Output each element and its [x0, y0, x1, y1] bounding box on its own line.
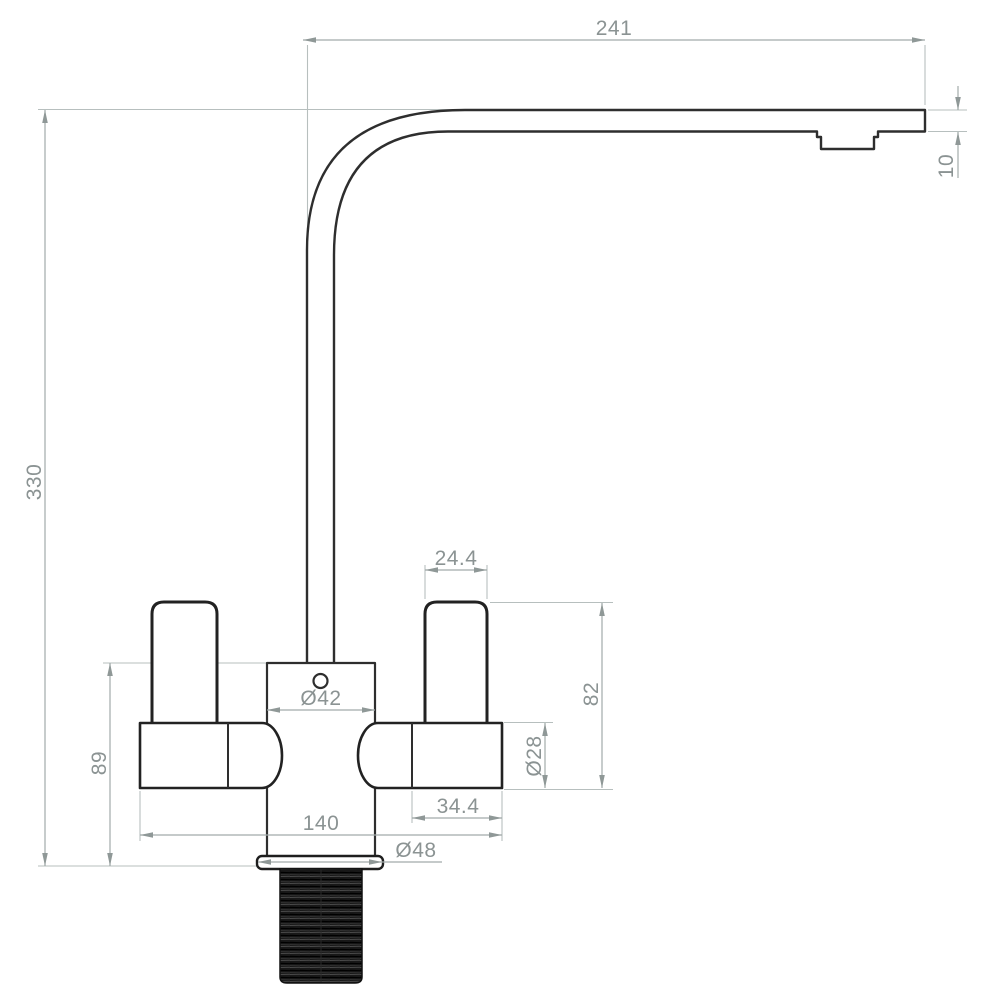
arrowhead-140-right	[489, 832, 502, 838]
dim-text-handle-base-length: 34.4	[437, 795, 480, 818]
dim-handle-height: 82	[580, 603, 605, 788]
spout-and-riser-outline	[307, 110, 925, 663]
dim-spout-tip-height: 10	[935, 86, 961, 178]
right-handle-base	[358, 723, 502, 788]
dim-handle-base-diameter: Ø28	[523, 723, 548, 788]
technical-drawing-canvas: Ø42 Ø48 241 10 330	[0, 0, 1000, 1000]
dim-text-overall-height: 330	[23, 464, 46, 501]
arrowhead-10-top	[955, 97, 961, 110]
arrowhead-330-top	[42, 110, 48, 123]
arrowhead-28-top	[542, 723, 548, 736]
dim-text-body-height: 89	[88, 751, 111, 775]
arrowhead-34-right	[489, 815, 502, 821]
body-front-hole	[314, 674, 328, 688]
right-handle-lever	[425, 602, 487, 726]
arrowhead-140-left	[140, 832, 153, 838]
dim-overall-height: 330	[23, 110, 48, 866]
arrowhead-82-bottom	[599, 775, 605, 788]
dim-text-spout-reach: 241	[596, 17, 633, 40]
left-handle-base	[140, 723, 282, 788]
arrowhead-330-bottom	[42, 853, 48, 866]
arrowhead-34-left	[412, 815, 425, 821]
arrowhead-89-top	[107, 663, 113, 676]
dim-text-spout-tip-height: 10	[935, 154, 958, 178]
dim-text-body-diameter: Ø42	[300, 687, 341, 710]
dim-handle-base-length: 34.4	[412, 795, 502, 821]
arrowhead-241-right	[912, 37, 925, 43]
dim-text-handle-height: 82	[580, 682, 603, 706]
left-handle-lever	[152, 602, 217, 726]
dim-body-height: 89	[88, 663, 113, 866]
arrowhead-82-top	[599, 603, 605, 616]
dim-lever-width: 24.4	[425, 547, 487, 573]
dim-spout-reach: 241	[303, 17, 925, 43]
dim-text-handle-base-diameter: Ø28	[523, 735, 546, 776]
dim-text-handle-span: 140	[303, 812, 340, 835]
dim-text-lever-width: 24.4	[435, 547, 478, 570]
arrowhead-241-left	[303, 37, 316, 43]
arrowhead-89-bottom	[107, 853, 113, 866]
dim-text-flange-diameter: Ø48	[395, 839, 436, 862]
tap-dimension-drawing: Ø42 Ø48 241 10 330	[0, 0, 1000, 1000]
arrowhead-10-bottom	[955, 132, 961, 145]
